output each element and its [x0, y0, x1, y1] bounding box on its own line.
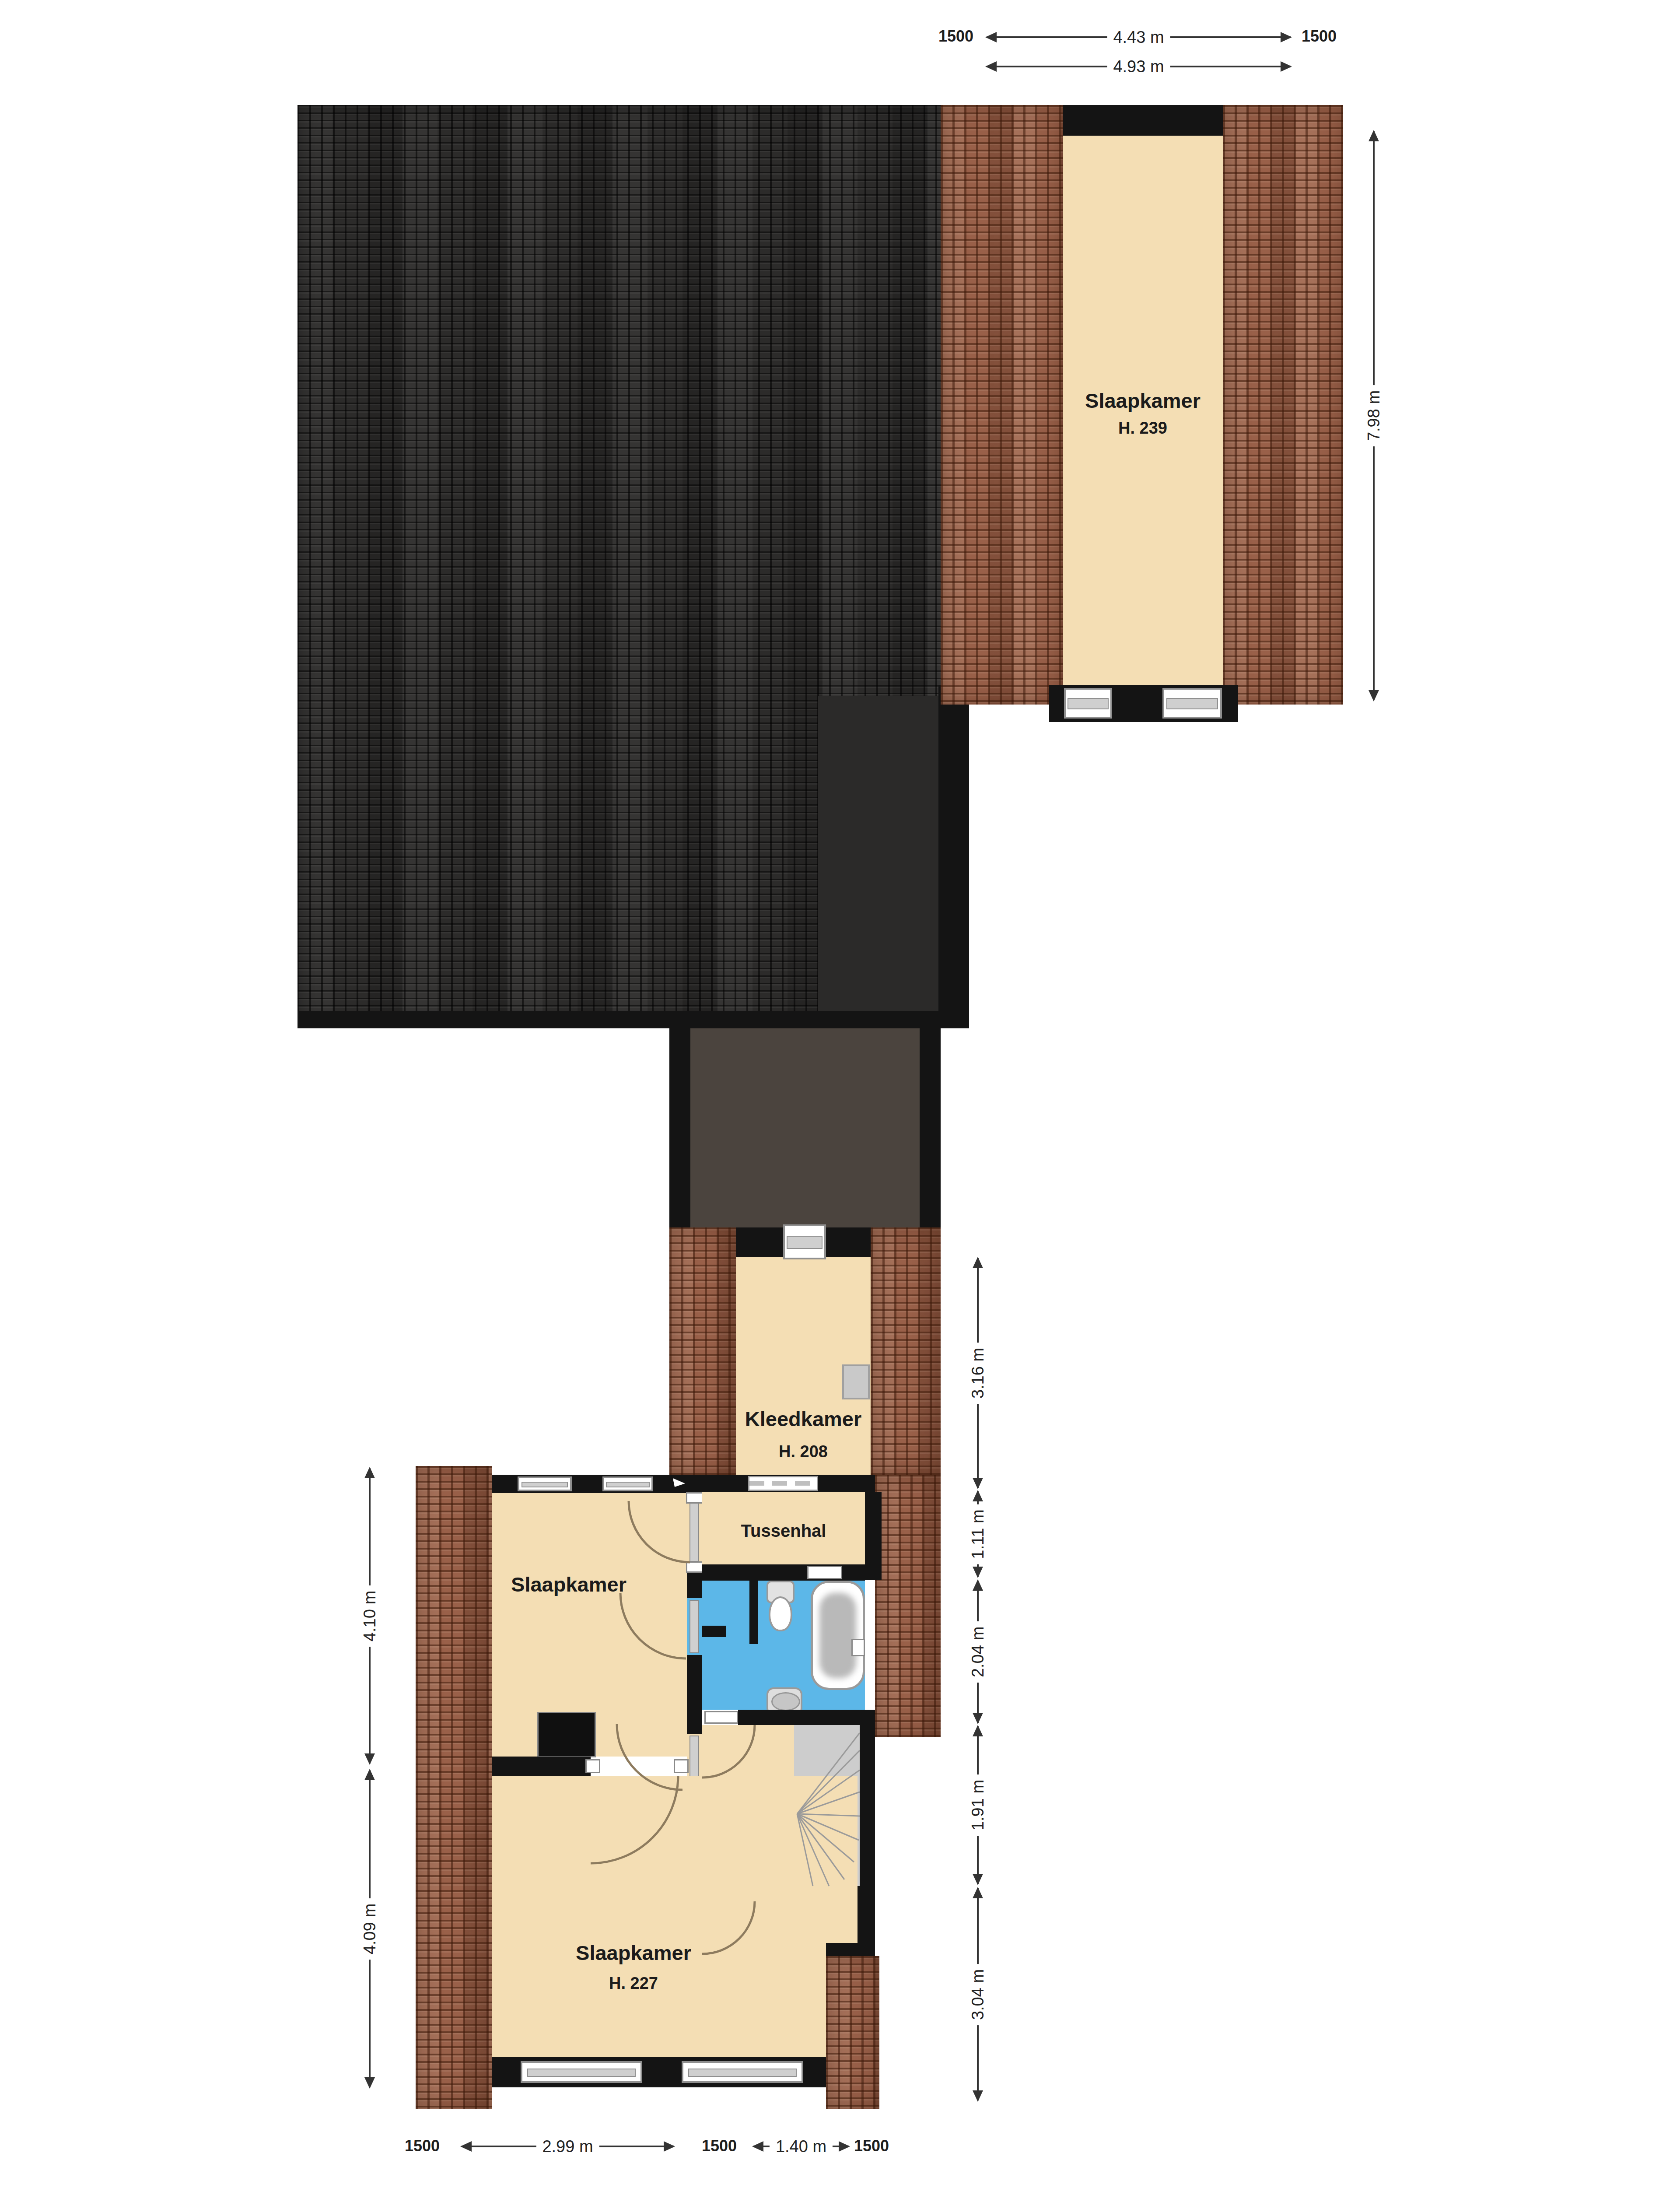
- dim-b1-1500c: 1500: [854, 2137, 889, 2155]
- bathroom-divider-wall: [749, 1581, 758, 1644]
- right-roof-band-middle: [875, 1475, 941, 1737]
- wing-bedroom-label: Slaapkamer: [1085, 389, 1200, 413]
- bathroom-door-opening: [807, 1566, 842, 1579]
- room-bottom-bedroom: [492, 1776, 857, 2057]
- bottom-bedroom-height: H. 227: [609, 1974, 658, 1993]
- door-jamb: [686, 1492, 703, 1504]
- chimney-object: [537, 1712, 596, 1757]
- kleedkamer-bottom-window: [748, 1476, 818, 1491]
- left-bedroom-label: Slaapkamer: [511, 1572, 626, 1596]
- tussenhal-label: Tussenhal: [741, 1521, 826, 1541]
- left-bedroom-window-1: [518, 1476, 572, 1491]
- kleedkamer-roof-left-band: [669, 1227, 736, 1475]
- kleedkamer-top-window: [783, 1224, 826, 1259]
- dim-top-outer-label: 4.93 m: [1107, 56, 1170, 77]
- dim-tussenhal-height: 1.11 m: [977, 1491, 979, 1577]
- kleedkamer-label: Kleedkamer: [745, 1407, 862, 1431]
- left-roof-band: [416, 1466, 492, 2109]
- bottom-bedroom-label: Slaapkamer: [576, 1941, 691, 1965]
- flat-roof-right-wall: [938, 685, 969, 1028]
- door-jamb: [674, 1759, 689, 1773]
- floor-plan: Slaapkamer H. 239 Kleedkamer H. 208 Slaa…: [0, 0, 1680, 2188]
- dormer-left-wall: [669, 1028, 690, 1227]
- dim-kleedkamer-height: 3.16 m: [977, 1258, 979, 1488]
- dim-b1-299: 2.99 m: [462, 2146, 674, 2147]
- left-bedroom-window-2: [602, 1476, 653, 1491]
- wing-window-right: [1162, 688, 1222, 719]
- dim-top-inner-label: 4.43 m: [1107, 27, 1170, 48]
- dormer-right-wall: [920, 1028, 941, 1227]
- wing-top-wall: [1063, 105, 1223, 136]
- dim-b1-1500a: 1500: [405, 2137, 440, 2155]
- kleedkamer-height: H. 208: [779, 1442, 828, 1461]
- kleedkamer-roof-right-band: [871, 1227, 941, 1475]
- corner-roof-band: [826, 1956, 879, 2109]
- bathroom-bottom-wall: [738, 1710, 875, 1725]
- dim-left-upper-height: 4.10 m: [369, 1468, 371, 1764]
- tussenhal-right-wall: [865, 1492, 882, 1580]
- dim-top-offset-right: 1500: [1302, 27, 1337, 46]
- dim-wing-height: 7.98 m: [1373, 131, 1375, 700]
- dim-top-inner: 4.43 m: [987, 36, 1291, 38]
- dormer-flat-roof: [690, 1028, 920, 1227]
- wing-window-left: [1064, 688, 1112, 719]
- flat-roof-section: [818, 696, 938, 1011]
- stairs-right-wall: [860, 1710, 875, 1901]
- dim-b1-1500b: 1500: [702, 2137, 737, 2155]
- overloop-door-opening-top: [704, 1711, 738, 1724]
- toilet-bowl: [769, 1596, 792, 1631]
- wing-roof-left-band: [941, 105, 1063, 705]
- bathtub-faucet: [851, 1639, 865, 1656]
- dim-top-offset-left: 1500: [917, 27, 973, 46]
- bathroom-stub-wall: [702, 1626, 726, 1637]
- bedrooms-divider-wall: [492, 1757, 591, 1776]
- door-jamb: [686, 1561, 703, 1573]
- main-roof-bottom-edge: [297, 1011, 969, 1028]
- bathtub-inner: [819, 1593, 856, 1678]
- dim-bathroom-height: 2.04 m: [977, 1581, 979, 1723]
- dim-left-lower-height: 4.09 m: [369, 1770, 371, 2087]
- dim-bottom-bedroom-height: 3.04 m: [977, 1888, 979, 2100]
- bottom-bedroom-window-1: [521, 2061, 642, 2083]
- wing-bedroom-height: H. 239: [1118, 419, 1167, 438]
- dim-overloop-height: 1.91 m: [977, 1726, 979, 1884]
- door-leaf-bathroom: [689, 1600, 699, 1653]
- kleedkamer-skylight: [842, 1364, 870, 1399]
- wing-roof-right-band: [1223, 105, 1343, 705]
- door-jamb: [585, 1759, 600, 1773]
- door-leaf-tussenhal: [689, 1502, 699, 1562]
- room-left-bedroom: [492, 1492, 702, 1757]
- dim-top-outer: 4.93 m: [987, 66, 1291, 67]
- dim-b1-140: 1.40 m: [753, 2146, 849, 2147]
- bottom-bedroom-window-2: [682, 2061, 803, 2083]
